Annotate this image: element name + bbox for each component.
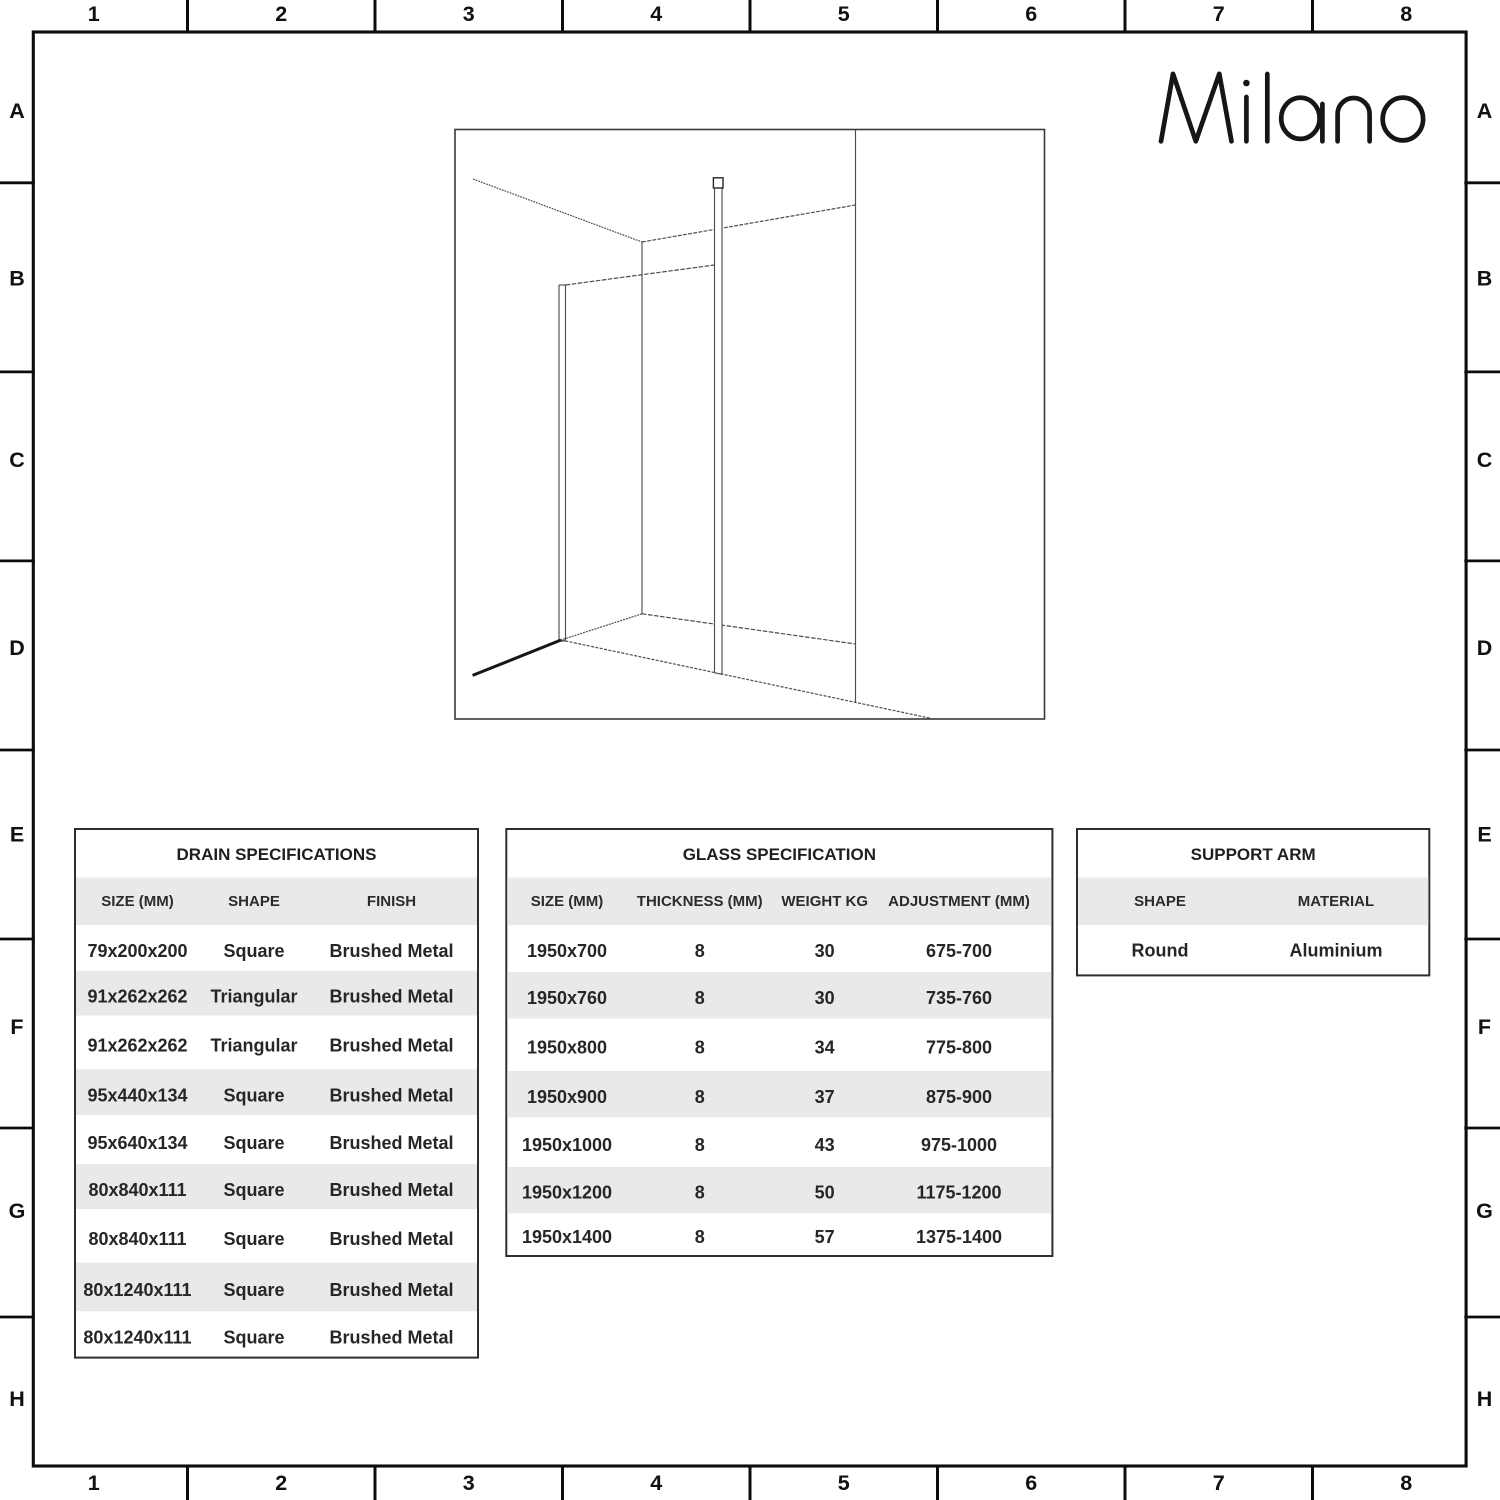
svg-text:1950x1400: 1950x1400 bbox=[522, 1227, 612, 1247]
svg-text:8: 8 bbox=[1400, 2, 1412, 26]
svg-text:A: A bbox=[1477, 99, 1493, 123]
svg-text:Brushed Metal: Brushed Metal bbox=[329, 1133, 453, 1153]
svg-text:2: 2 bbox=[275, 1471, 287, 1495]
svg-text:THICKNESS (MM): THICKNESS (MM) bbox=[637, 893, 763, 910]
svg-text:Square: Square bbox=[223, 1328, 284, 1348]
svg-text:91x262x262: 91x262x262 bbox=[87, 1036, 187, 1056]
svg-text:H: H bbox=[9, 1387, 25, 1411]
svg-text:975-1000: 975-1000 bbox=[921, 1135, 997, 1155]
svg-text:G: G bbox=[9, 1199, 26, 1223]
svg-text:C: C bbox=[9, 448, 25, 472]
svg-text:Brushed Metal: Brushed Metal bbox=[329, 1036, 453, 1056]
svg-text:Square: Square bbox=[223, 1133, 284, 1153]
svg-text:F: F bbox=[1478, 1015, 1491, 1039]
svg-text:Brushed Metal: Brushed Metal bbox=[329, 1280, 453, 1300]
svg-text:3: 3 bbox=[463, 2, 475, 26]
svg-text:8: 8 bbox=[1400, 1471, 1412, 1495]
svg-text:675-700: 675-700 bbox=[926, 941, 992, 961]
svg-text:E: E bbox=[10, 823, 24, 847]
svg-text:6: 6 bbox=[1025, 2, 1037, 26]
svg-text:95x440x134: 95x440x134 bbox=[87, 1085, 187, 1105]
svg-text:30: 30 bbox=[815, 941, 835, 961]
svg-text:8: 8 bbox=[695, 988, 705, 1008]
svg-text:1950x1200: 1950x1200 bbox=[522, 1183, 612, 1203]
svg-text:C: C bbox=[1477, 448, 1493, 472]
svg-text:Aluminium: Aluminium bbox=[1290, 940, 1383, 960]
svg-text:1950x760: 1950x760 bbox=[527, 988, 607, 1008]
svg-text:5: 5 bbox=[838, 2, 850, 26]
svg-text:1175-1200: 1175-1200 bbox=[916, 1183, 1001, 1203]
svg-text:50: 50 bbox=[815, 1183, 835, 1203]
svg-text:B: B bbox=[9, 267, 25, 291]
svg-text:6: 6 bbox=[1025, 1471, 1037, 1495]
svg-text:3: 3 bbox=[463, 1471, 475, 1495]
svg-text:Square: Square bbox=[223, 941, 284, 961]
svg-text:Square: Square bbox=[223, 1229, 284, 1249]
svg-text:8: 8 bbox=[695, 1037, 705, 1057]
svg-text:Square: Square bbox=[223, 1180, 284, 1200]
svg-text:Brushed Metal: Brushed Metal bbox=[329, 1085, 453, 1105]
svg-text:1950x1000: 1950x1000 bbox=[522, 1135, 612, 1155]
svg-text:735-760: 735-760 bbox=[926, 988, 992, 1008]
svg-text:1375-1400: 1375-1400 bbox=[916, 1227, 1002, 1247]
svg-text:80x1240x111: 80x1240x111 bbox=[83, 1328, 191, 1348]
svg-text:Brushed Metal: Brushed Metal bbox=[329, 1328, 453, 1348]
svg-text:DRAIN SPECIFICATIONS: DRAIN SPECIFICATIONS bbox=[177, 845, 377, 864]
svg-text:5: 5 bbox=[838, 1471, 850, 1495]
svg-text:Brushed Metal: Brushed Metal bbox=[329, 986, 453, 1006]
svg-text:4: 4 bbox=[650, 2, 662, 26]
svg-text:Brushed Metal: Brushed Metal bbox=[329, 1229, 453, 1249]
svg-text:ADJUSTMENT (MM): ADJUSTMENT (MM) bbox=[888, 893, 1030, 910]
svg-text:1: 1 bbox=[88, 2, 100, 26]
svg-text:80x840x111: 80x840x111 bbox=[88, 1229, 186, 1249]
svg-text:Square: Square bbox=[223, 1280, 284, 1300]
svg-text:30: 30 bbox=[815, 988, 835, 1008]
svg-text:7: 7 bbox=[1213, 1471, 1225, 1495]
svg-text:MATERIAL: MATERIAL bbox=[1298, 893, 1374, 910]
svg-text:H: H bbox=[1477, 1387, 1493, 1411]
svg-text:79x200x200: 79x200x200 bbox=[87, 941, 187, 961]
svg-text:GLASS SPECIFICATION: GLASS SPECIFICATION bbox=[683, 845, 876, 864]
svg-text:SHAPE: SHAPE bbox=[1134, 893, 1186, 910]
svg-text:FINISH: FINISH bbox=[367, 893, 416, 910]
svg-text:Brushed Metal: Brushed Metal bbox=[329, 1180, 453, 1200]
svg-text:A: A bbox=[9, 99, 25, 123]
svg-text:91x262x262: 91x262x262 bbox=[87, 986, 187, 1006]
svg-text:1: 1 bbox=[88, 1471, 100, 1495]
svg-text:B: B bbox=[1477, 267, 1493, 291]
svg-text:D: D bbox=[1477, 636, 1493, 660]
svg-text:WEIGHT KG: WEIGHT KG bbox=[781, 893, 868, 910]
svg-text:1950x900: 1950x900 bbox=[527, 1087, 607, 1107]
svg-text:F: F bbox=[10, 1015, 23, 1039]
svg-text:Triangular: Triangular bbox=[210, 1036, 297, 1056]
svg-text:34: 34 bbox=[815, 1037, 835, 1057]
svg-text:80x1240x111: 80x1240x111 bbox=[83, 1280, 191, 1300]
svg-text:80x840x111: 80x840x111 bbox=[88, 1180, 186, 1200]
svg-text:D: D bbox=[9, 636, 25, 660]
svg-text:1950x800: 1950x800 bbox=[527, 1037, 607, 1057]
svg-text:Brushed Metal: Brushed Metal bbox=[329, 941, 453, 961]
svg-text:1950x700: 1950x700 bbox=[527, 941, 607, 961]
svg-text:57: 57 bbox=[815, 1227, 835, 1247]
svg-text:7: 7 bbox=[1213, 2, 1225, 26]
svg-text:SIZE (MM): SIZE (MM) bbox=[531, 893, 604, 910]
svg-text:2: 2 bbox=[275, 2, 287, 26]
svg-text:95x640x134: 95x640x134 bbox=[87, 1133, 187, 1153]
svg-text:8: 8 bbox=[695, 1183, 705, 1203]
svg-text:Triangular: Triangular bbox=[210, 986, 297, 1006]
svg-text:SIZE (MM): SIZE (MM) bbox=[101, 893, 174, 910]
svg-text:37: 37 bbox=[815, 1087, 835, 1107]
svg-text:8: 8 bbox=[695, 1135, 705, 1155]
svg-text:4: 4 bbox=[650, 1471, 662, 1495]
svg-text:SHAPE: SHAPE bbox=[228, 893, 280, 910]
svg-text:875-900: 875-900 bbox=[926, 1087, 992, 1107]
svg-text:775-800: 775-800 bbox=[926, 1037, 992, 1057]
svg-text:G: G bbox=[1476, 1199, 1493, 1223]
svg-text:SUPPORT ARM: SUPPORT ARM bbox=[1191, 845, 1316, 864]
svg-text:Square: Square bbox=[223, 1085, 284, 1105]
svg-text:8: 8 bbox=[695, 1227, 705, 1247]
svg-text:E: E bbox=[1477, 823, 1491, 847]
svg-text:8: 8 bbox=[695, 941, 705, 961]
svg-text:Round: Round bbox=[1132, 940, 1189, 960]
svg-text:43: 43 bbox=[815, 1135, 835, 1155]
svg-text:8: 8 bbox=[695, 1087, 705, 1107]
